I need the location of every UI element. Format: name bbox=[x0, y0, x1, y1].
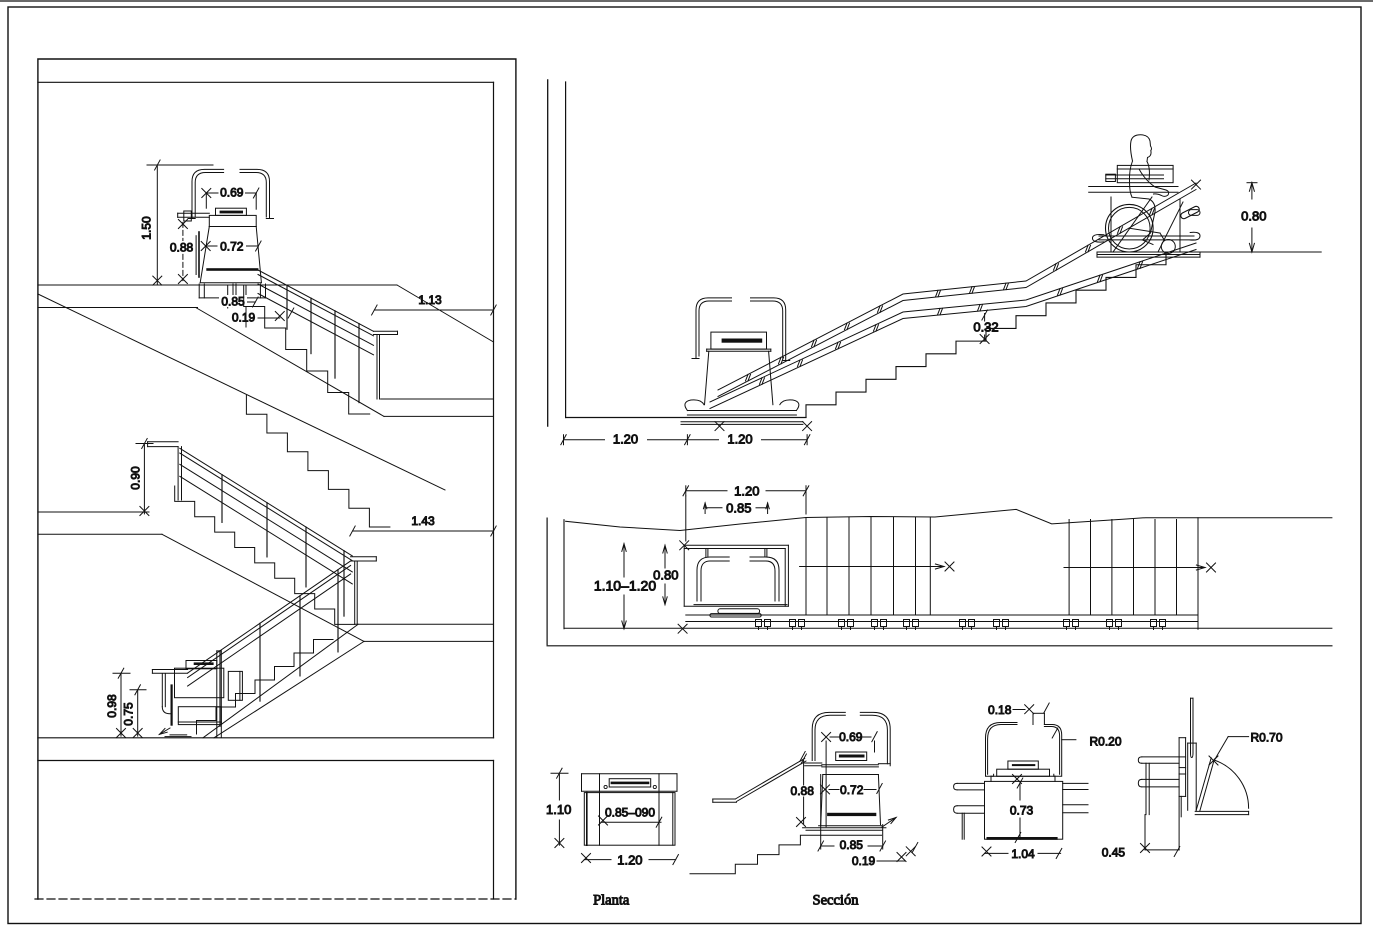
svg-text:0.80: 0.80 bbox=[653, 568, 678, 583]
svg-text:0.45: 0.45 bbox=[1102, 846, 1126, 860]
svg-text:1.04: 1.04 bbox=[1011, 847, 1035, 861]
svg-text:1.43: 1.43 bbox=[411, 514, 435, 528]
svg-text:0.69: 0.69 bbox=[220, 186, 244, 200]
svg-text:0.85: 0.85 bbox=[726, 500, 751, 515]
svg-text:0.85–090: 0.85–090 bbox=[605, 806, 655, 820]
svg-text:0.75: 0.75 bbox=[122, 702, 136, 726]
svg-text:0.88: 0.88 bbox=[170, 241, 194, 255]
svg-text:0.98: 0.98 bbox=[105, 694, 119, 718]
svg-text:1.10: 1.10 bbox=[546, 802, 571, 817]
svg-text:R0.70: R0.70 bbox=[1250, 731, 1282, 745]
svg-text:1.20: 1.20 bbox=[727, 432, 752, 447]
svg-text:1.20: 1.20 bbox=[613, 432, 638, 447]
svg-text:1.20: 1.20 bbox=[734, 483, 759, 498]
svg-text:1.20: 1.20 bbox=[617, 852, 642, 867]
svg-text:0.85: 0.85 bbox=[840, 838, 864, 852]
svg-text:Sección: Sección bbox=[813, 893, 860, 909]
svg-text:1.13: 1.13 bbox=[418, 293, 442, 307]
svg-text:0.80: 0.80 bbox=[1241, 209, 1266, 224]
svg-text:0.69: 0.69 bbox=[839, 730, 863, 744]
svg-text:1.10–1.20: 1.10–1.20 bbox=[594, 578, 656, 594]
svg-text:0.85: 0.85 bbox=[221, 295, 245, 309]
svg-text:0.73: 0.73 bbox=[1010, 804, 1034, 818]
svg-text:R0.20: R0.20 bbox=[1089, 734, 1121, 748]
svg-text:0.18: 0.18 bbox=[988, 703, 1012, 717]
svg-text:0.72: 0.72 bbox=[220, 240, 244, 254]
svg-text:0.32: 0.32 bbox=[973, 320, 998, 335]
svg-text:1.50: 1.50 bbox=[140, 216, 154, 240]
svg-text:0.88: 0.88 bbox=[791, 784, 815, 798]
svg-text:0.19: 0.19 bbox=[852, 854, 876, 868]
svg-text:Planta: Planta bbox=[593, 893, 630, 909]
svg-text:0.19: 0.19 bbox=[232, 311, 256, 325]
svg-text:0.72: 0.72 bbox=[840, 783, 864, 797]
svg-text:0.90: 0.90 bbox=[129, 466, 143, 490]
